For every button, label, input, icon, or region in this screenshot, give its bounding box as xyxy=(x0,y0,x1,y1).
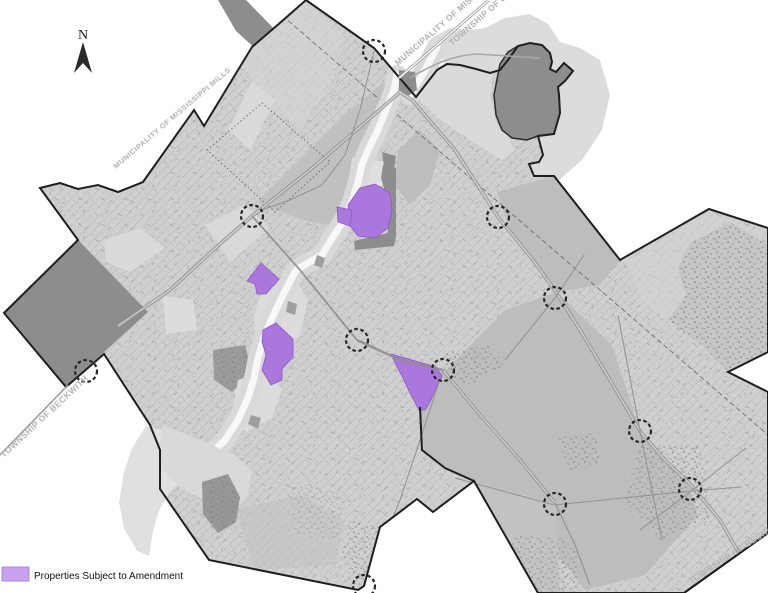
svg-text:N: N xyxy=(78,28,88,43)
svg-text:Properties Subject to Amendmen: Properties Subject to Amendment xyxy=(34,571,183,582)
